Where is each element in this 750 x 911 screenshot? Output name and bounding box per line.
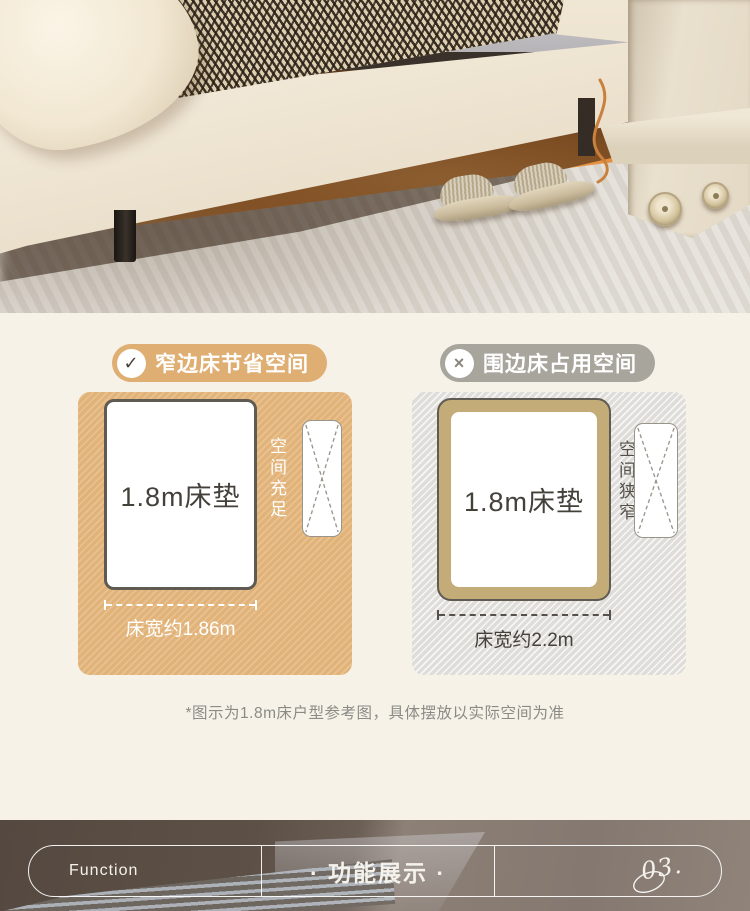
cart-wheel xyxy=(702,182,729,209)
narrow-bed-floorplan: 1.8m床垫 空间充足 床宽约1.86m xyxy=(78,392,352,675)
width-label: 床宽约2.2m xyxy=(437,625,611,652)
check-icon: ✓ xyxy=(117,349,146,378)
bed-leg xyxy=(114,210,136,262)
surround-bed-floorplan: 1.8m床垫 空间狭窄 床宽约2.2m xyxy=(412,392,686,675)
width-label: 床宽约1.86m xyxy=(104,614,257,641)
width-dimension-line xyxy=(437,610,611,620)
mattress-label: 1.8m床垫 xyxy=(464,480,584,519)
width-dimension-line xyxy=(104,600,257,610)
space-note: 空间充足 xyxy=(264,437,289,521)
page-number: 03. xyxy=(639,851,684,886)
mattress-outline: 1.8m床垫 xyxy=(104,399,257,590)
nightstand-symbol xyxy=(634,423,678,538)
section-title-cn: · 功能展示 · xyxy=(310,854,446,888)
disclaimer-note: *图示为1.8m床户型参考图，具体摆放以实际空间为准 xyxy=(0,701,750,723)
product-detail-page: ✓ 窄边床节省空间 × 围边床占用空间 1.8m床垫 空间充足 床宽约1.86m xyxy=(0,0,750,911)
surround-bed-badge: × 围边床占用空间 xyxy=(440,344,655,382)
nightstand-symbol xyxy=(302,420,342,537)
section-header-footer: Function · 功能展示 · 03. xyxy=(0,820,750,911)
bedroom-photo xyxy=(0,0,750,313)
cart-wheel xyxy=(648,192,682,226)
crossed-area-icon xyxy=(635,424,677,537)
section-label-en: Function xyxy=(69,862,138,880)
bed-frame-outline: 1.8m床垫 xyxy=(437,398,611,601)
mattress-outline: 1.8m床垫 xyxy=(451,412,597,587)
mattress-label: 1.8m床垫 xyxy=(120,475,240,514)
badge-label: 围边床占用空间 xyxy=(483,348,637,378)
crossed-area-icon xyxy=(303,421,341,536)
cross-icon: × xyxy=(445,349,474,378)
badge-label: 窄边床节省空间 xyxy=(155,348,309,378)
narrow-bed-badge: ✓ 窄边床节省空间 xyxy=(112,344,327,382)
section-title-bar: Function · 功能展示 · 03. xyxy=(28,845,722,897)
